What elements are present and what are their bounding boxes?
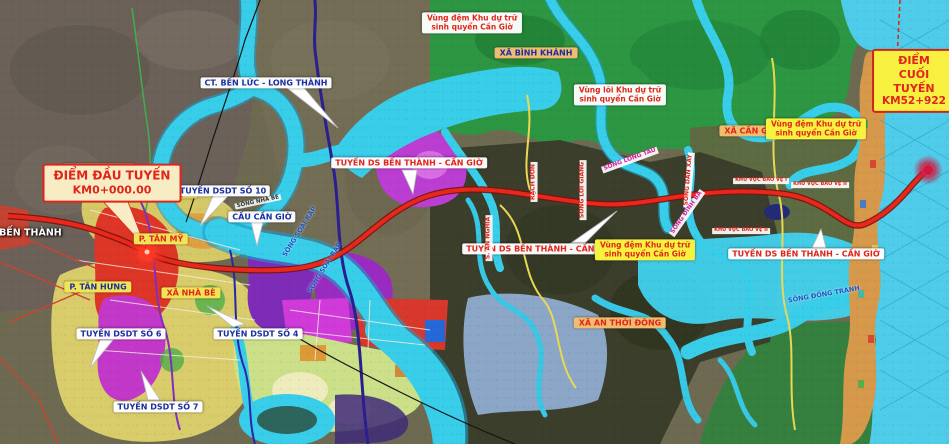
label-p-tan-my: P. TÂN MỸ <box>134 233 188 244</box>
label-tuyen-dsdt-so-7: TUYẾN DSDT SỐ 7 <box>114 401 203 412</box>
label-p-ben-thanh: P.BẾN THÀNH <box>0 229 62 240</box>
label-tuyen-ds-bt-cg-1: TUYẾN DS BẾN THÀNH - CẦN GIỜ <box>331 157 487 168</box>
route-end-km: KM52+922 <box>882 95 946 108</box>
label-tuyen-ds-bt-cg-3: TUYẾN DS BẾN THÀNH - CẦN GIỜ <box>728 248 884 259</box>
label-xa-binh-khanh: XÃ BÌNH KHÁNH <box>495 47 578 58</box>
planning-map: ĐIỂM ĐẦU TUYẾN KM0+000.00 ĐIỂM CUỐI TUYẾ… <box>0 0 949 444</box>
route-start-callout: ĐIỂM ĐẦU TUYẾN KM0+000.00 <box>43 164 182 203</box>
label-khu-vuc-bao-ve-2b: KHU VỰC BẢO VỆ II <box>712 228 770 234</box>
route-end-title: ĐIỂM CUỐI TUYẾN <box>882 54 946 95</box>
label-vung-dem-3: Vùng đệm Khu dự trữsinh quyển Cần Giờ <box>595 239 695 260</box>
label-vung-dem-1: Vùng đệm Khu dự trữsinh quyển Cần Giờ <box>422 12 522 33</box>
label-vung-dem-2: Vùng đệm Khu dự trữsinh quyển Cần Giờ <box>766 118 866 139</box>
label-song-long-tau: SÔNG LÒNG TÀU <box>601 147 659 174</box>
label-song-soai-rap-2: SÔNG SOÀI RẠP <box>307 242 344 295</box>
route-start-km: KM0+000.00 <box>54 184 171 198</box>
label-xa-nha-be: XÃ NHÀ BÈ <box>161 287 220 298</box>
label-song-loi-giang: SÔNG LÔI GIANG <box>580 160 587 220</box>
label-khu-vuc-bao-ve-2a: KHU VỰC BẢO VỆ II <box>791 182 849 188</box>
label-s-an-nghia: S. AN NGHĨA <box>486 215 493 261</box>
map-labels-layer: ĐIỂM ĐẦU TUYẾN KM0+000.00 ĐIỂM CUỐI TUYẾ… <box>0 0 949 444</box>
route-end-callout: ĐIỂM CUỐI TUYẾN KM52+922 <box>872 49 949 113</box>
label-tuyen-dsdt-so-10: TUYẾN DSDT SỐ 10 <box>176 185 270 196</box>
label-cau-can-gio: CẦU CẦN GIỜ <box>228 211 295 222</box>
label-p-tan-hung: P. TÂN HƯNG <box>64 281 131 292</box>
label-khu-vuc-bao-ve-1: KHU VỰC BẢO VỆ I <box>733 178 789 184</box>
label-ct-ben-luc-long-thanh: CT. BẾN LỨC - LONG THÀNH <box>201 77 332 88</box>
label-rach-don: RẠCH ĐÔN <box>531 162 538 202</box>
label-vung-loi: Vùng lõi Khu dự trữsinh quyển Cần Giờ <box>574 84 666 105</box>
route-start-title: ĐIỂM ĐẦU TUYẾN <box>54 169 171 184</box>
label-tuyen-dsdt-so-6: TUYẾN DSDT SỐ 6 <box>77 328 166 339</box>
label-tuyen-dsdt-so-4: TUYẾN DSDT SỐ 4 <box>214 328 303 339</box>
label-xa-an-thoi-dong: XÃ AN THỚI ĐÔNG <box>574 317 666 328</box>
label-song-dong-tranh: SÔNG ĐỒNG TRANH <box>788 285 861 305</box>
